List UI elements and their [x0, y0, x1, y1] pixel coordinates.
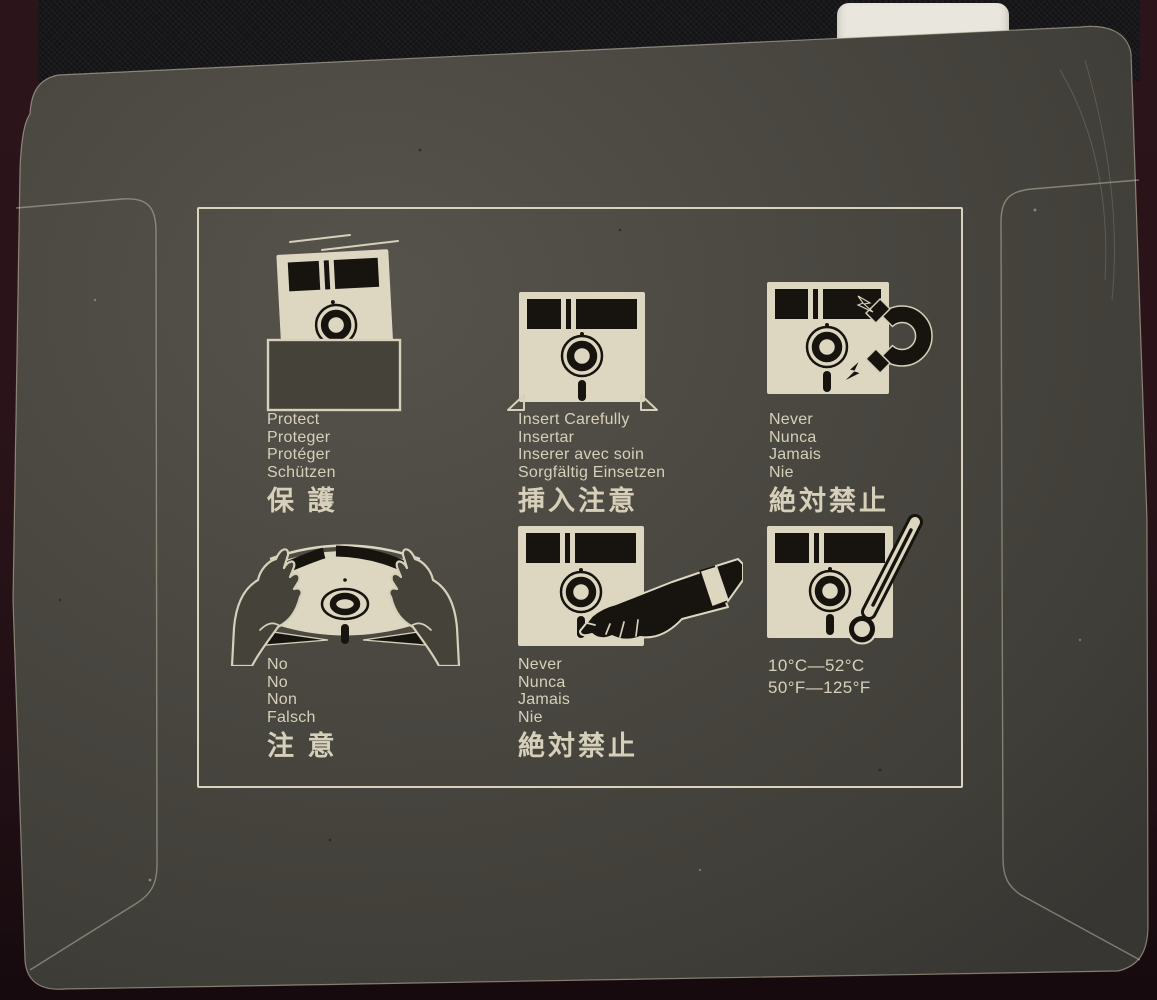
caption-line: Nie — [518, 709, 638, 727]
caption-line: No — [267, 674, 338, 692]
caption-line-japanese: 挿入注意 — [518, 486, 665, 516]
caption-protect: Protect Proteger Protéger Schützen 保 護 — [267, 411, 338, 516]
caption-no-bend: No No Non Falsch 注 意 — [267, 656, 338, 761]
caption-line: Proteger — [267, 429, 338, 447]
caption-line: Insertar — [518, 429, 665, 447]
caption-line: 50°F—125°F — [768, 677, 871, 699]
magnet-warning-icon — [765, 280, 940, 402]
caption-line: Protect — [267, 411, 338, 429]
disk-into-drive-icon — [505, 290, 660, 412]
caption-line: Nie — [769, 464, 889, 482]
caption-line: Inserer avec soin — [518, 446, 665, 464]
caption-line: Never — [518, 656, 638, 674]
caption-line: Protéger — [267, 446, 338, 464]
caption-line: Nunca — [769, 429, 889, 447]
caption-line: No — [267, 656, 338, 674]
caption-insert-carefully: Insert Carefully Insertar Inserer avec s… — [518, 411, 665, 516]
caption-line: Never — [769, 411, 889, 429]
caption-line: Jamais — [769, 446, 889, 464]
caption-line: Jamais — [518, 691, 638, 709]
caption-line-japanese: 注 意 — [267, 731, 338, 761]
caption-line: Schützen — [267, 464, 338, 482]
thermometer-icon — [765, 510, 940, 658]
disk-in-sleeve-icon — [246, 228, 406, 412]
caption-line: Insert Carefully — [518, 411, 665, 429]
caption-temperature: 10°C—52°C 50°F—125°F — [768, 655, 871, 699]
caption-line: Falsch — [267, 709, 338, 727]
caption-line: Sorgfältig Einsetzen — [518, 464, 665, 482]
bending-hands-icon — [228, 528, 463, 666]
caption-never-magnet: Never Nunca Jamais Nie 絶対禁止 — [769, 411, 889, 516]
caption-line: 10°C—52°C — [768, 655, 871, 677]
photo-floppy-envelope-back: Protect Proteger Protéger Schützen 保 護 I… — [0, 0, 1157, 1000]
caption-line: Non — [267, 691, 338, 709]
caption-line-japanese: 保 護 — [267, 486, 338, 516]
caption-line: Nunca — [518, 674, 638, 692]
caption-never-touch: Never Nunca Jamais Nie 絶対禁止 — [518, 656, 638, 761]
touching-hand-icon — [508, 524, 743, 658]
caption-line-japanese: 絶対禁止 — [518, 731, 638, 761]
